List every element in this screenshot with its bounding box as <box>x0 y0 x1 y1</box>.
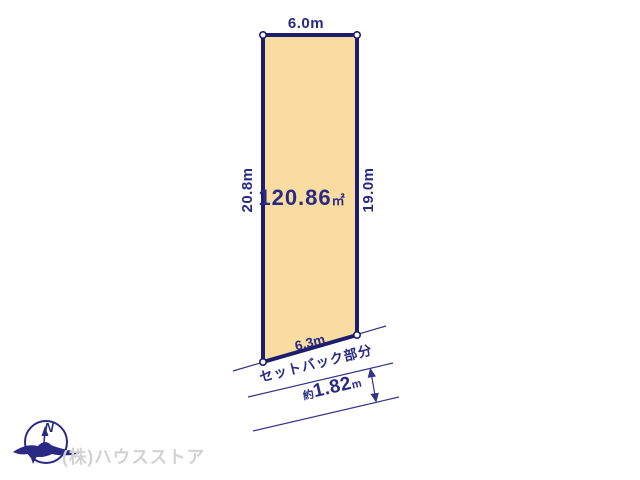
company-watermark: (株)ハウスストア <box>62 447 205 467</box>
road-far-edge-line <box>253 397 399 431</box>
corner-marker-top-left <box>260 32 266 38</box>
corner-marker-top-right <box>354 32 360 38</box>
setback-unit: m <box>351 377 363 391</box>
corner-marker-bottom-left <box>260 359 266 365</box>
land-plot-diagram-page: 6.0m 20.8m 19.0m 120.86㎡ 6.3m セットバック部分 約… <box>0 0 640 480</box>
compass-north-label: N <box>44 420 54 435</box>
corner-marker-bottom-right <box>354 332 360 338</box>
area-unit: ㎡ <box>332 193 346 208</box>
top-dimension-label: 6.0m <box>288 15 324 32</box>
setback-value: 1.82 <box>311 373 354 402</box>
diagram-canvas: 6.0m 20.8m 19.0m 120.86㎡ 6.3m セットバック部分 約… <box>0 0 640 480</box>
right-dimension-label: 19.0m <box>360 167 377 212</box>
setback-dimension-arrow <box>371 370 377 402</box>
left-dimension-label: 20.8m <box>239 167 256 212</box>
setback-dimension-label: 約1.82m <box>300 371 363 405</box>
area-value: 120.86 <box>258 185 331 210</box>
